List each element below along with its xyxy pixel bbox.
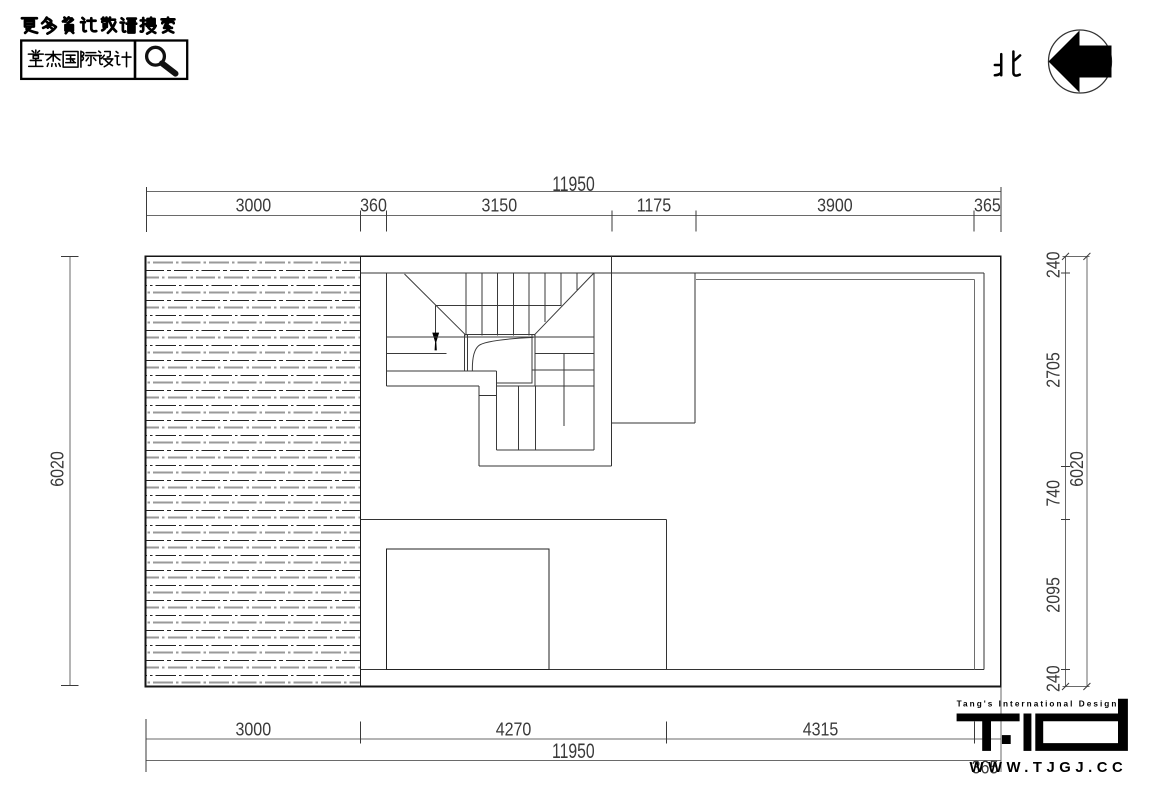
svg-text:360: 360 [360,195,387,216]
svg-text:1175: 1175 [637,195,671,216]
svg-text:365: 365 [974,195,1001,216]
svg-text:6020: 6020 [1066,451,1087,487]
svg-text:Tang's International Design: Tang's International Design [957,699,1119,708]
svg-text:2705: 2705 [1043,352,1064,388]
svg-text:240: 240 [1043,665,1064,692]
svg-text:4270: 4270 [496,719,532,740]
svg-text:3000: 3000 [235,719,271,740]
svg-text:3150: 3150 [481,195,517,216]
svg-text:4315: 4315 [803,719,839,740]
svg-text:6020: 6020 [47,451,68,487]
svg-text:2095: 2095 [1043,577,1064,613]
svg-text:11950: 11950 [552,739,595,763]
svg-text:3000: 3000 [236,195,272,216]
svg-text:11950: 11950 [552,172,595,196]
svg-text:740: 740 [1043,480,1064,507]
svg-text:240: 240 [1043,251,1064,278]
svg-text:3900: 3900 [817,195,853,216]
svg-text:WWW.TJGJ.CC: WWW.TJGJ.CC [970,760,1128,776]
